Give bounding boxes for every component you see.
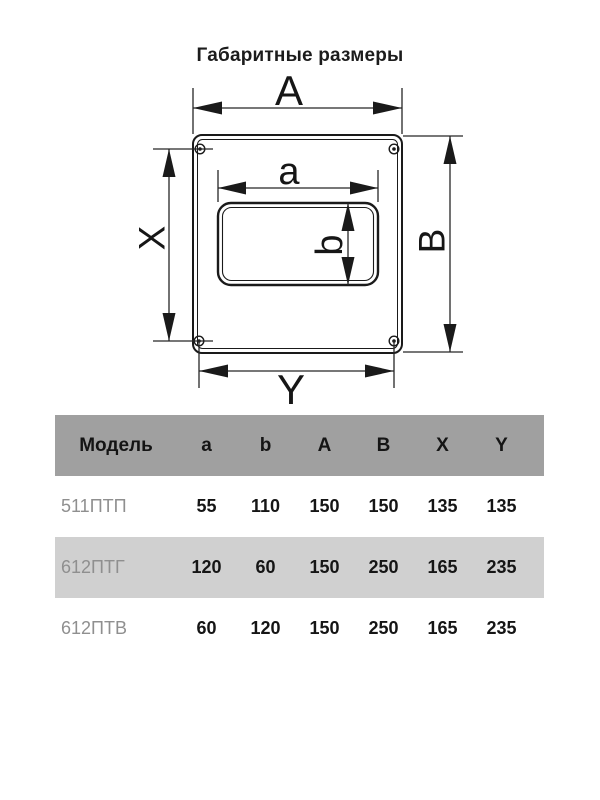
column-header-A: A xyxy=(295,435,354,457)
column-header-b: b xyxy=(236,435,295,457)
model-cell: 511ПТП xyxy=(55,496,177,517)
dimension-diagram: A a b X B Y xyxy=(0,70,600,418)
dimension-label-B: B xyxy=(412,229,453,254)
value-cell: 120 xyxy=(177,557,236,578)
value-cell: 135 xyxy=(413,496,472,517)
value-cell: 150 xyxy=(354,496,413,517)
arrowhead xyxy=(163,313,176,341)
value-cell: 165 xyxy=(413,557,472,578)
value-cell: 235 xyxy=(472,618,531,639)
column-header-a: a xyxy=(177,435,236,457)
column-header-X: X xyxy=(413,435,472,457)
value-cell: 55 xyxy=(177,496,236,517)
table-header-row: Модель a b A B X Y xyxy=(55,415,544,476)
value-cell: 120 xyxy=(236,618,295,639)
value-cell: 135 xyxy=(472,496,531,517)
duct-opening xyxy=(218,203,378,285)
arrowhead xyxy=(444,136,457,164)
dimension-A: A xyxy=(193,70,402,134)
dimension-label-A: A xyxy=(275,70,303,114)
value-cell: 150 xyxy=(295,618,354,639)
value-cell: 150 xyxy=(295,496,354,517)
dimension-label-X: X xyxy=(132,226,173,251)
arrowhead xyxy=(199,365,228,378)
value-cell: 250 xyxy=(354,618,413,639)
model-cell: 612ПТГ xyxy=(55,557,177,578)
value-cell: 60 xyxy=(236,557,295,578)
table-row: 612ПТВ 60 120 150 250 165 235 xyxy=(55,598,544,659)
arrowhead xyxy=(193,102,222,115)
table-row: 511ПТП 55 110 150 150 135 135 xyxy=(55,476,544,537)
model-cell: 612ПТВ xyxy=(55,618,177,639)
page-title: Габаритные размеры xyxy=(0,45,600,67)
value-cell: 110 xyxy=(236,496,295,517)
arrowhead xyxy=(444,324,457,352)
dimension-label-b: b xyxy=(309,234,351,255)
table-row: 612ПТГ 120 60 150 250 165 235 xyxy=(55,537,544,598)
value-cell: 60 xyxy=(177,618,236,639)
dimension-label-Y: Y xyxy=(277,366,305,413)
arrowhead xyxy=(373,102,402,115)
value-cell: 165 xyxy=(413,618,472,639)
value-cell: 150 xyxy=(295,557,354,578)
dimension-B: B xyxy=(403,136,463,352)
column-header-B: B xyxy=(354,435,413,457)
arrowhead xyxy=(365,365,394,378)
dimension-label-a: a xyxy=(278,151,300,193)
column-header-Y: Y xyxy=(472,435,531,457)
column-header-model: Модель xyxy=(55,435,177,457)
dimensions-table: Модель a b A B X Y 511ПТП 55 110 150 150… xyxy=(55,415,544,659)
value-cell: 235 xyxy=(472,557,531,578)
arrowhead xyxy=(163,149,176,177)
value-cell: 250 xyxy=(354,557,413,578)
